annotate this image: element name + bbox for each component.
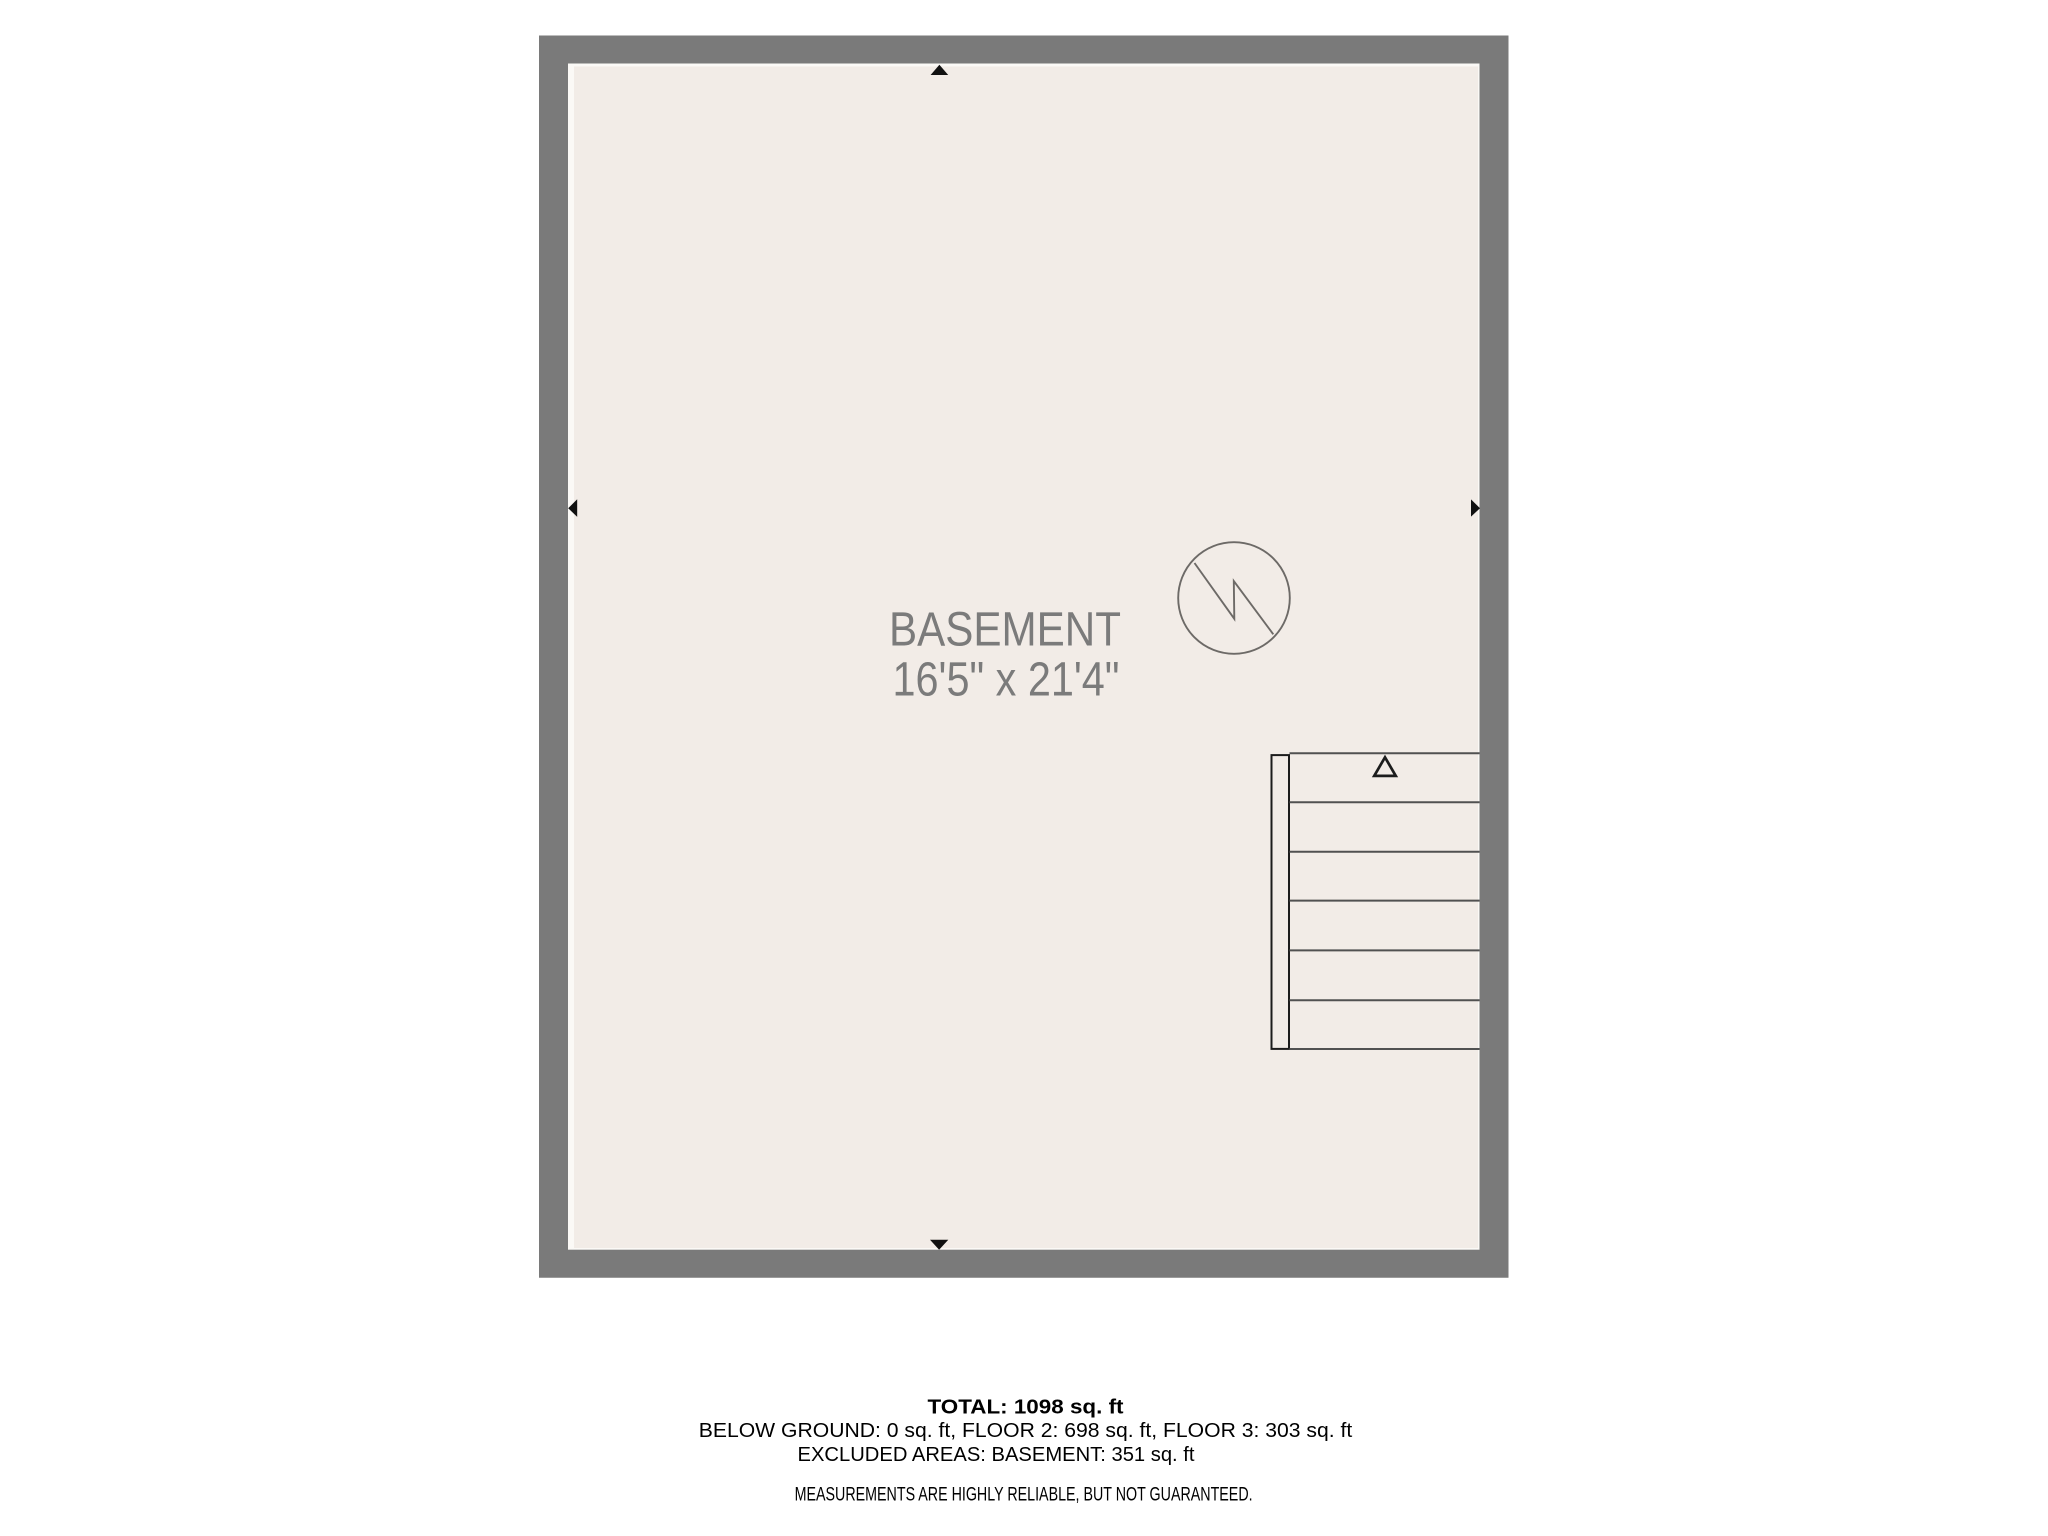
svg-text:EXCLUDED AREAS: BASEMENT: 351: EXCLUDED AREAS: BASEMENT: 351 sq. ft xyxy=(798,1443,1195,1466)
svg-text:16'5" x 21'4": 16'5" x 21'4" xyxy=(893,654,1120,707)
svg-text:BELOW GROUND: 0 sq. ft, FLOOR: BELOW GROUND: 0 sq. ft, FLOOR 2: 698 sq.… xyxy=(699,1419,1353,1442)
svg-text:TOTAL: 1098 sq. ft: TOTAL: 1098 sq. ft xyxy=(928,1396,1124,1419)
svg-text:MEASUREMENTS ARE HIGHLY RELIAB: MEASUREMENTS ARE HIGHLY RELIABLE, BUT NO… xyxy=(795,1484,1253,1506)
svg-text:BASEMENT: BASEMENT xyxy=(889,604,1121,657)
